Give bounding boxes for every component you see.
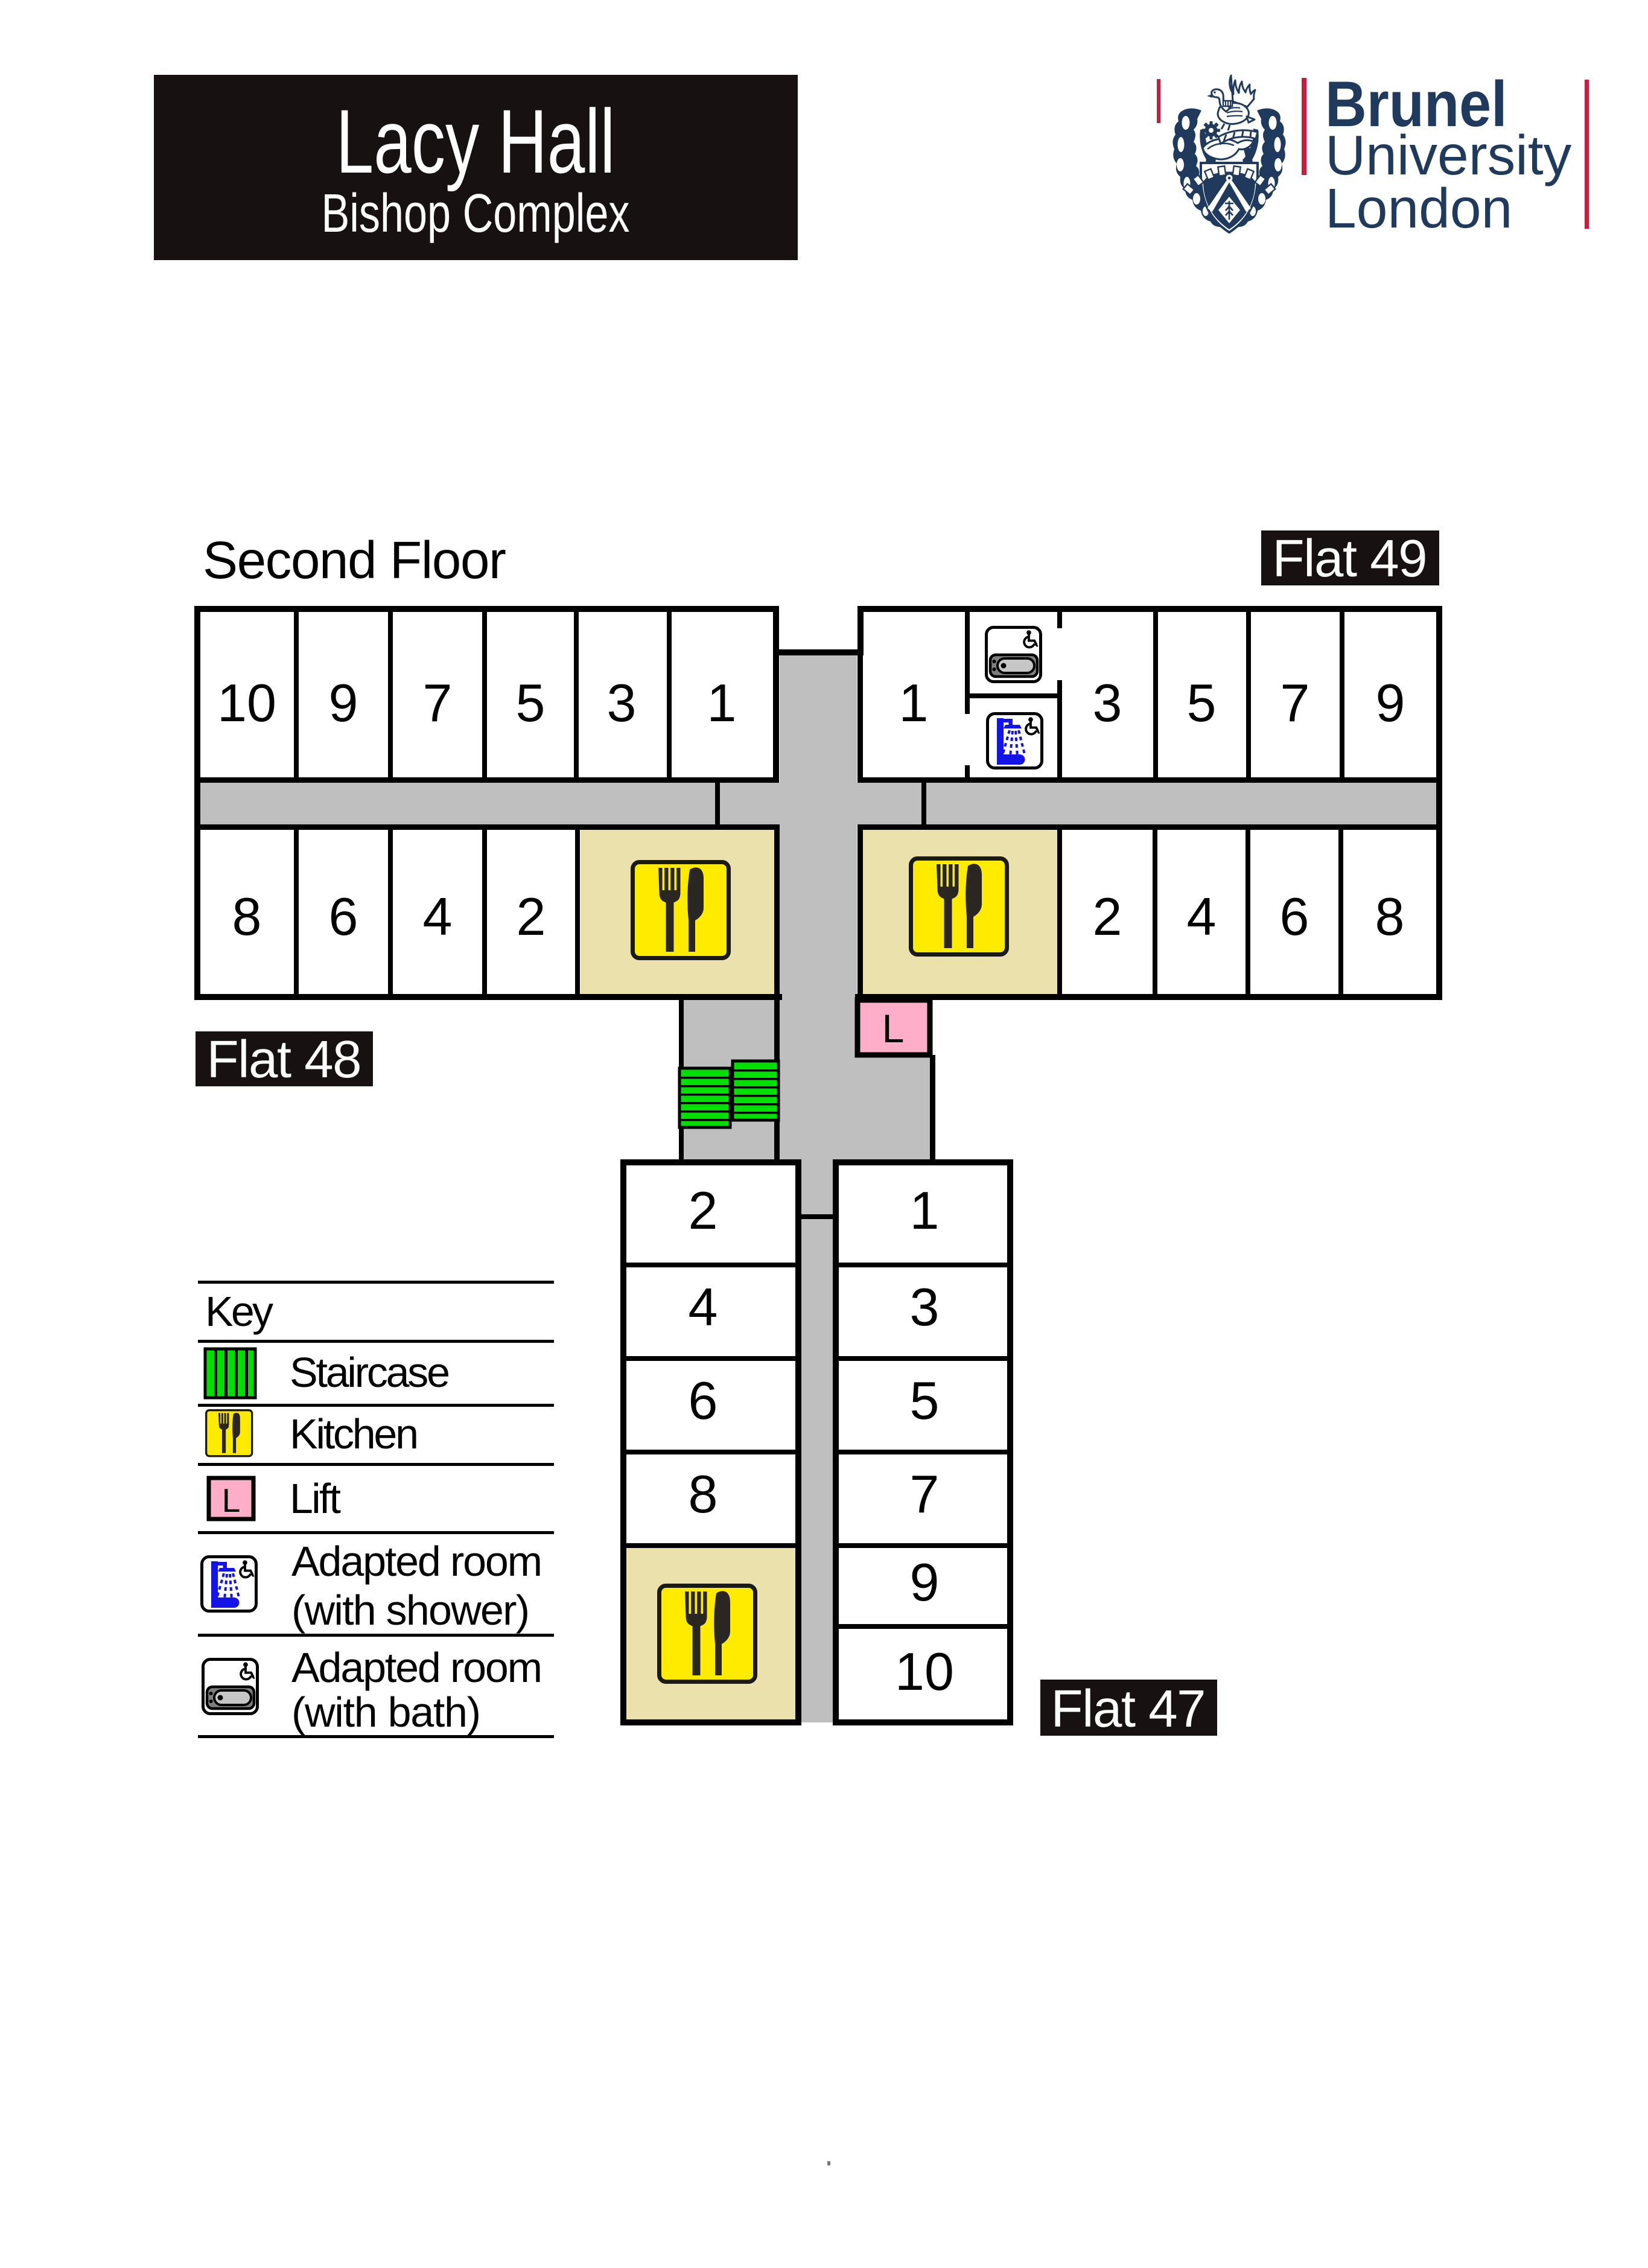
svg-text:8: 8 xyxy=(689,1464,718,1524)
svg-text:L: L xyxy=(882,1006,905,1051)
svg-text:Flat 49: Flat 49 xyxy=(1273,529,1428,588)
svg-text:5: 5 xyxy=(1187,673,1217,733)
svg-text:Second Floor: Second Floor xyxy=(203,531,506,590)
svg-text:L: L xyxy=(222,1482,241,1519)
svg-text:London: London xyxy=(1325,177,1512,240)
svg-text:8: 8 xyxy=(1375,887,1405,946)
svg-text:(with shower): (with shower) xyxy=(291,1587,530,1634)
svg-text:7: 7 xyxy=(910,1464,940,1524)
svg-text:3: 3 xyxy=(910,1277,940,1337)
svg-text:2: 2 xyxy=(517,887,546,946)
svg-text:9: 9 xyxy=(1376,673,1405,733)
svg-text:5: 5 xyxy=(516,673,546,733)
svg-text:2: 2 xyxy=(1093,887,1122,946)
svg-text:3: 3 xyxy=(607,673,637,733)
svg-text:2: 2 xyxy=(689,1180,718,1240)
svg-text:Flat 47: Flat 47 xyxy=(1051,1680,1206,1738)
svg-text:9: 9 xyxy=(329,673,358,733)
svg-text:6: 6 xyxy=(1280,887,1309,946)
svg-text:1: 1 xyxy=(707,673,737,733)
svg-text:Lift: Lift xyxy=(290,1475,341,1522)
svg-text:5: 5 xyxy=(910,1371,940,1430)
svg-text:Lacy Hall: Lacy Hall xyxy=(336,91,616,192)
svg-text:Adapted room: Adapted room xyxy=(291,1644,542,1691)
svg-text:6: 6 xyxy=(329,887,358,946)
svg-text:1: 1 xyxy=(910,1180,940,1240)
svg-text:4: 4 xyxy=(423,887,453,946)
svg-text:4: 4 xyxy=(689,1277,718,1337)
svg-text:9: 9 xyxy=(910,1552,940,1612)
svg-text:8: 8 xyxy=(232,887,262,946)
svg-text:Bishop Complex: Bishop Complex xyxy=(321,183,629,244)
svg-text:Kitchen: Kitchen xyxy=(290,1410,419,1457)
svg-text:6: 6 xyxy=(689,1371,718,1430)
svg-text:Staircase: Staircase xyxy=(290,1349,450,1396)
svg-text:10: 10 xyxy=(217,673,276,733)
svg-text:(with bath): (with bath) xyxy=(291,1689,481,1736)
svg-text:10: 10 xyxy=(895,1642,954,1701)
svg-text:1: 1 xyxy=(899,673,929,733)
svg-text:Adapted room: Adapted room xyxy=(291,1538,542,1585)
svg-text:4: 4 xyxy=(1187,887,1217,946)
svg-text:7: 7 xyxy=(423,673,453,733)
svg-text:3: 3 xyxy=(1093,673,1122,733)
svg-text:Key: Key xyxy=(205,1288,273,1335)
svg-text:7: 7 xyxy=(1281,673,1310,733)
svg-text:Flat 48: Flat 48 xyxy=(207,1030,362,1089)
